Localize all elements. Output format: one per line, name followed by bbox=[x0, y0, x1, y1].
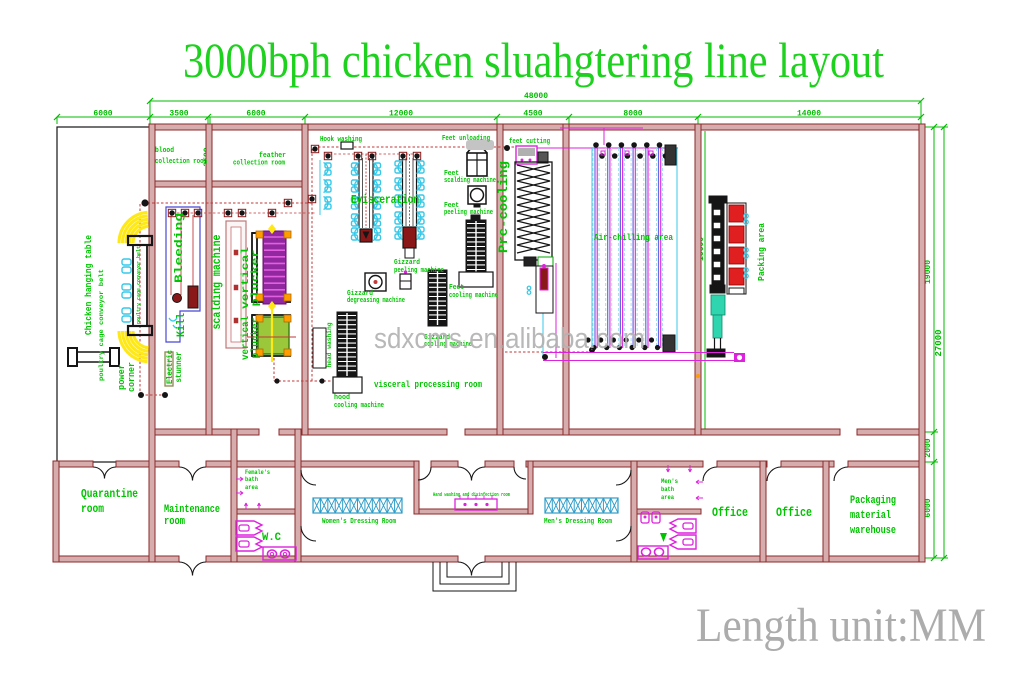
svg-text:Feet unloading: Feet unloading bbox=[442, 135, 490, 143]
svg-text:Packaging: Packaging bbox=[850, 495, 896, 507]
svg-text:Electric: Electric bbox=[166, 350, 175, 384]
svg-text:Quarantine: Quarantine bbox=[81, 487, 138, 501]
svg-text:scalding machine: scalding machine bbox=[210, 235, 224, 330]
svg-text:Gizzard: Gizzard bbox=[394, 259, 420, 267]
svg-text:stunner: stunner bbox=[175, 351, 184, 382]
svg-text:14000: 14000 bbox=[797, 110, 821, 119]
svg-text:3500: 3500 bbox=[169, 110, 188, 119]
svg-text:Evisceration: Evisceration bbox=[351, 193, 419, 207]
svg-text:warehouse: warehouse bbox=[850, 525, 896, 537]
svg-text:Office: Office bbox=[712, 505, 748, 520]
svg-text:bath: bath bbox=[245, 476, 258, 483]
svg-text:room: room bbox=[81, 502, 104, 516]
svg-text:cooling machine: cooling machine bbox=[334, 402, 384, 410]
svg-text:Women's Dressing Room: Women's Dressing Room bbox=[322, 518, 396, 526]
svg-text:Office: Office bbox=[776, 505, 812, 520]
svg-text:Bleeding: Bleeding bbox=[174, 213, 186, 283]
svg-text:visceral processing room: visceral processing room bbox=[374, 379, 482, 390]
svg-text:Feet: Feet bbox=[449, 284, 464, 292]
svg-text:4500: 4500 bbox=[523, 110, 542, 119]
svg-text:peeling machine: peeling machine bbox=[394, 267, 444, 275]
svg-text:feet cutting: feet cutting bbox=[509, 138, 550, 146]
svg-text:collection room: collection room bbox=[233, 160, 285, 168]
svg-text:Maintenance: Maintenance bbox=[164, 504, 220, 516]
svg-text:Chicken hanging table: Chicken hanging table bbox=[84, 235, 94, 335]
svg-text:plucker: plucker bbox=[250, 250, 262, 307]
svg-text:bath: bath bbox=[661, 486, 674, 493]
svg-text:area: area bbox=[245, 484, 258, 491]
svg-text:room: room bbox=[164, 516, 185, 528]
svg-text:collection room: collection room bbox=[155, 158, 207, 166]
svg-text:Packing area: Packing area bbox=[757, 222, 767, 281]
svg-text:Kill: Kill bbox=[176, 313, 188, 337]
svg-text:blood: blood bbox=[155, 147, 174, 155]
svg-text:Hook washing: Hook washing bbox=[320, 136, 362, 144]
svg-text:48000: 48000 bbox=[524, 92, 548, 101]
svg-text:Air-chilling area: Air-chilling area bbox=[594, 232, 673, 243]
svg-text:Men's Dressing Room: Men's Dressing Room bbox=[544, 518, 612, 526]
svg-text:6000: 6000 bbox=[246, 110, 265, 119]
svg-text:8000: 8000 bbox=[623, 110, 642, 119]
svg-text:area: area bbox=[661, 494, 674, 501]
svg-text:Hand washing and disinfection: Hand washing and disinfection room bbox=[433, 491, 510, 498]
svg-text:6000: 6000 bbox=[93, 110, 112, 119]
svg-text:hood: hood bbox=[334, 394, 350, 402]
svg-text:3000bph chicken sluahgtering: 3000bph chicken sluahgtering line layout bbox=[183, 32, 884, 88]
svg-text:W.C: W.C bbox=[262, 532, 281, 544]
svg-text:Length unit:MM: Length unit:MM bbox=[696, 599, 986, 652]
svg-text:peeling machine: peeling machine bbox=[444, 209, 493, 217]
svg-text:material: material bbox=[850, 510, 891, 522]
svg-text:degreasing machine: degreasing machine bbox=[347, 297, 405, 305]
svg-text:27000: 27000 bbox=[934, 329, 944, 356]
svg-text:poultry cage conveyor belt: poultry cage conveyor belt bbox=[135, 246, 142, 324]
svg-text:Men's: Men's bbox=[661, 478, 678, 485]
svg-text:sdxcms.en.alibaba.com: sdxcms.en.alibaba.com bbox=[374, 323, 645, 355]
svg-text:head washing: head washing bbox=[326, 322, 333, 367]
svg-text:cooling machine: cooling machine bbox=[449, 292, 498, 300]
svg-text:poultry cage conveyor belt: poultry cage conveyor belt bbox=[98, 269, 105, 381]
svg-text:Pre-cooling: Pre-cooling bbox=[496, 161, 511, 253]
svg-text:power: power bbox=[117, 364, 127, 390]
svg-text:corner: corner bbox=[127, 362, 137, 392]
svg-text:12000: 12000 bbox=[389, 110, 413, 119]
svg-text:Female's: Female's bbox=[245, 469, 270, 476]
svg-text:plucker: plucker bbox=[250, 318, 262, 359]
svg-text:scalding machine: scalding machine bbox=[444, 177, 496, 185]
